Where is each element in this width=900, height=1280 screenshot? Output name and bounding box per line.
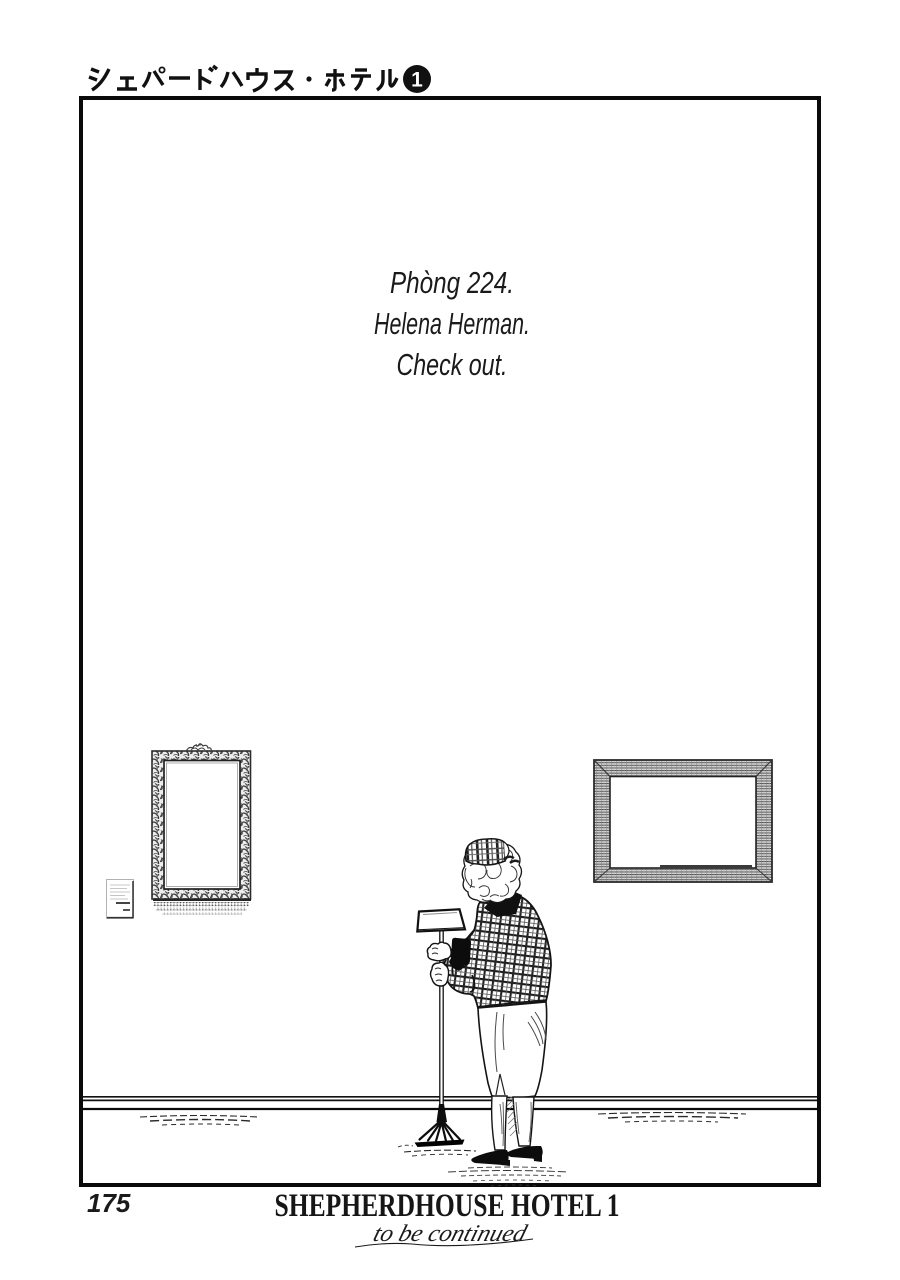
svg-text:Phòng 224.: Phòng 224. (390, 265, 514, 300)
svg-text:175: 175 (87, 1188, 131, 1218)
svg-text:1: 1 (411, 69, 423, 92)
svg-text:Check out.: Check out. (397, 347, 508, 382)
svg-text:Helena Herman.: Helena Herman. (374, 306, 530, 341)
svg-text:SHEPHERDHOUSE HOTEL 1: SHEPHERDHOUSE HOTEL 1 (275, 1188, 620, 1224)
